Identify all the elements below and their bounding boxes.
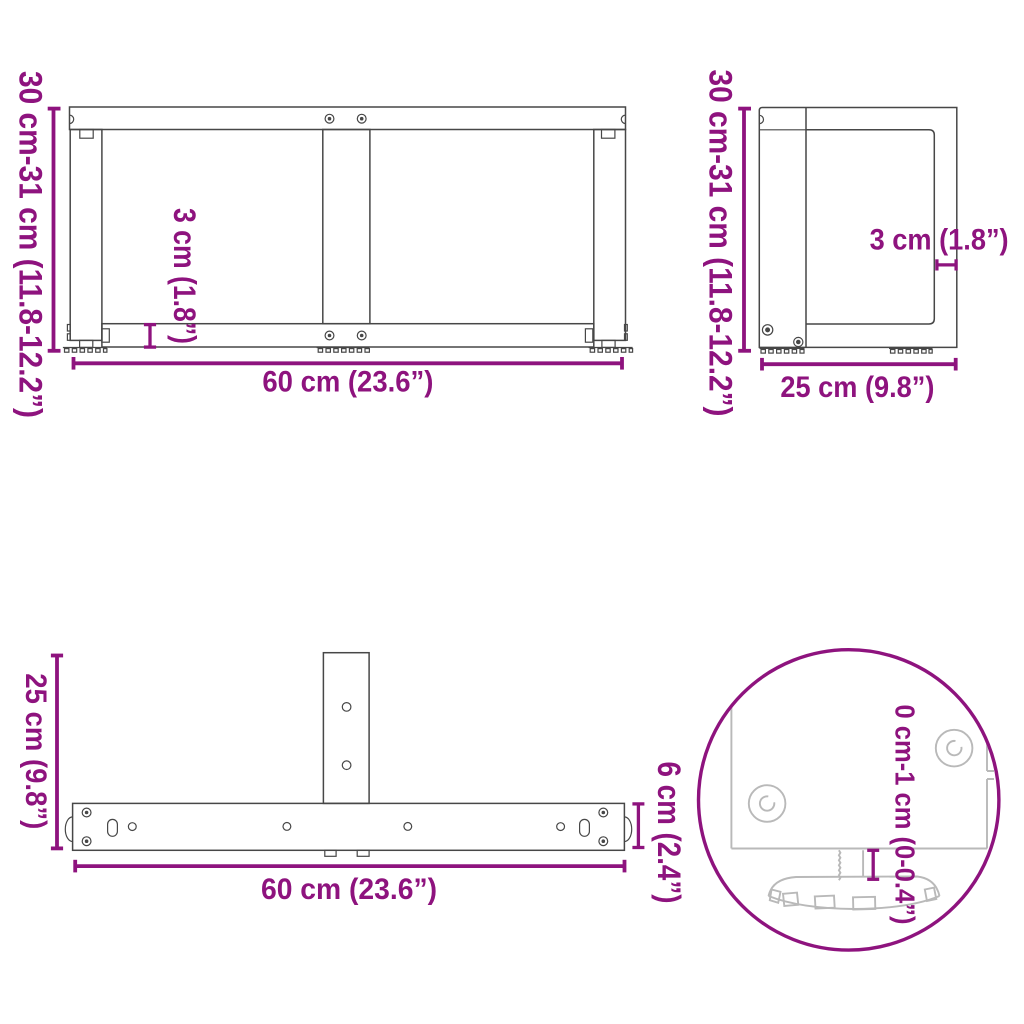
svg-text:30 cm-31 cm (11.8-12.2”): 30 cm-31 cm (11.8-12.2”) xyxy=(703,70,739,417)
svg-text:3 cm (1.8”): 3 cm (1.8”) xyxy=(870,224,1009,257)
svg-text:25 cm (9.8”): 25 cm (9.8”) xyxy=(19,673,52,829)
svg-text:3 cm (1.8”): 3 cm (1.8”) xyxy=(167,208,203,344)
svg-text:60 cm (23.6”): 60 cm (23.6”) xyxy=(262,365,433,398)
svg-text:25 cm (9.8”): 25 cm (9.8”) xyxy=(780,371,934,404)
svg-text:60 cm (23.6”): 60 cm (23.6”) xyxy=(261,873,437,906)
svg-text:6 cm (2.4”): 6 cm (2.4”) xyxy=(651,762,687,904)
svg-text:30 cm-31 cm (11.8-12.2”): 30 cm-31 cm (11.8-12.2”) xyxy=(13,71,49,418)
svg-text:0 cm-1 cm (0-0.4”): 0 cm-1 cm (0-0.4”) xyxy=(890,705,921,925)
